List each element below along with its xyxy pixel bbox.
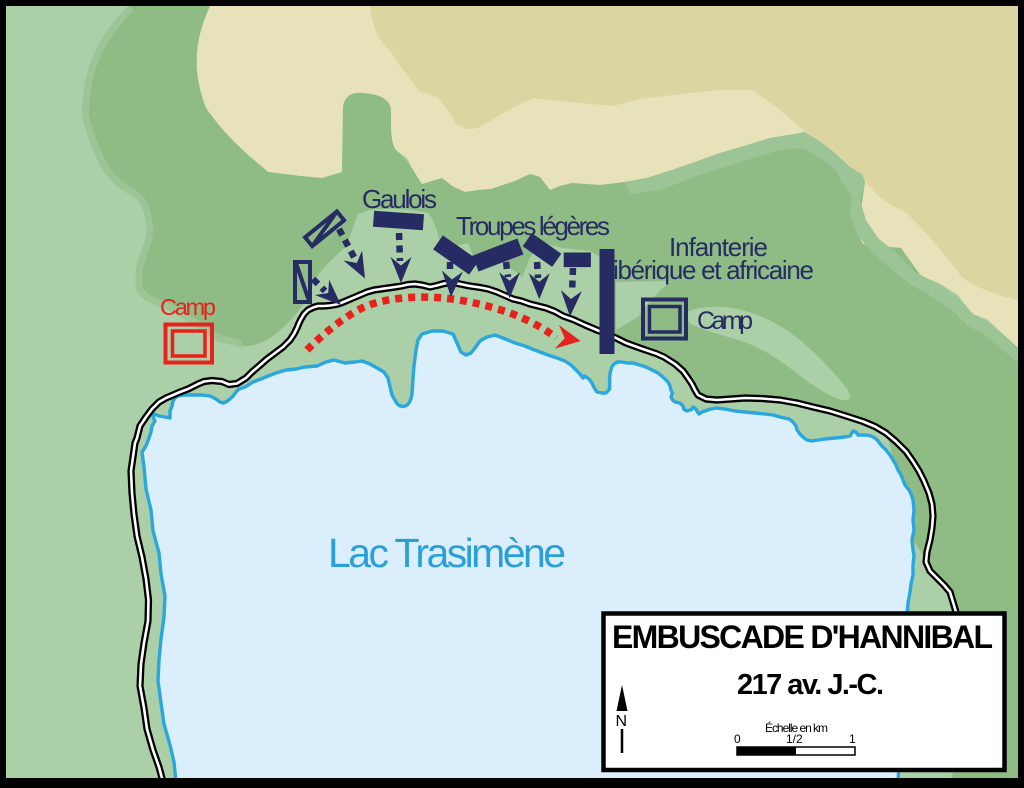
svg-text:ibérique et africaine: ibérique et africaine — [613, 255, 814, 285]
svg-text:N: N — [616, 713, 628, 730]
svg-text:Camp: Camp — [697, 307, 753, 335]
svg-text:Lac Trasimène: Lac Trasimène — [328, 530, 566, 576]
svg-text:1: 1 — [849, 732, 856, 746]
svg-text:0: 0 — [734, 732, 741, 746]
svg-text:1/2: 1/2 — [786, 732, 803, 746]
svg-text:217 av. J.-C.: 217 av. J.-C. — [737, 669, 884, 701]
svg-text:Gaulois: Gaulois — [362, 184, 437, 214]
svg-text:EMBUSCADE D'HANNIBAL: EMBUSCADE D'HANNIBAL — [612, 619, 993, 655]
svg-text:Camp: Camp — [160, 294, 216, 320]
